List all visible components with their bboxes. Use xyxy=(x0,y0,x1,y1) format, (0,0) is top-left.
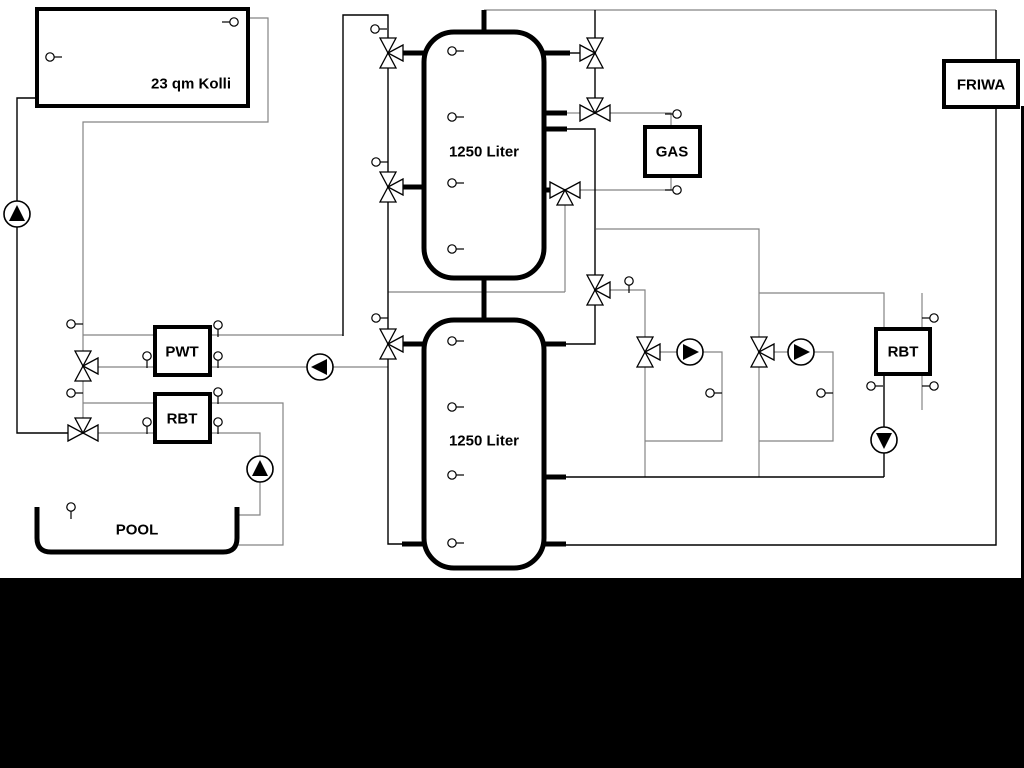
solar-collector-label: 23 qm Kolli xyxy=(151,76,231,93)
pwt-heat-exchanger-label: PWT xyxy=(165,344,198,361)
three-way-valve xyxy=(380,38,403,68)
temperature-sensor-icon xyxy=(448,113,456,121)
rbt-right-label: RBT xyxy=(888,344,919,361)
temperature-sensor-icon xyxy=(230,18,238,26)
friwa-station-label: FRIWA xyxy=(957,77,1005,94)
temperature-sensor-icon xyxy=(930,382,938,390)
three-way-valve xyxy=(751,337,774,367)
gas-boiler-label: GAS xyxy=(656,144,689,161)
temperature-sensor-icon xyxy=(673,186,681,194)
temperature-sensor-icon xyxy=(143,352,151,360)
temperature-sensor-icon xyxy=(448,337,456,345)
pool-label: POOL xyxy=(116,522,159,539)
three-way-valve xyxy=(580,38,603,68)
temperature-sensor-icon xyxy=(448,47,456,55)
temperature-sensor-icon xyxy=(214,418,222,426)
temperature-sensor-icon xyxy=(448,403,456,411)
temperature-sensor-icon xyxy=(67,389,75,397)
pipe-line xyxy=(610,290,645,337)
temperature-sensor-icon xyxy=(448,245,456,253)
three-way-valve xyxy=(380,329,403,359)
buffer-tank-1-label: 1250 Liter xyxy=(449,144,519,161)
temperature-sensor-icon xyxy=(143,418,151,426)
pipe-line xyxy=(237,482,260,515)
pipe-line xyxy=(388,359,402,544)
temperature-sensor-icon xyxy=(67,503,75,511)
temperature-sensor-icon xyxy=(625,277,633,285)
three-way-valve xyxy=(75,351,98,381)
bottom-letterbox xyxy=(0,578,1024,768)
temperature-sensor-icon xyxy=(372,314,380,322)
temperature-sensor-icon xyxy=(930,314,938,322)
three-way-valve xyxy=(587,275,610,305)
temperature-sensor-icon xyxy=(214,321,222,329)
pipe-line xyxy=(565,107,996,545)
temperature-sensor-icon xyxy=(867,382,875,390)
temperature-sensor-icon xyxy=(448,539,456,547)
pipe-line xyxy=(580,176,671,190)
temperature-sensor-icon xyxy=(817,389,825,397)
pipe-line xyxy=(610,113,671,127)
three-way-valve xyxy=(580,98,610,121)
schematic-canvas: 23 qm KolliGASFRIWAPWTRBTRBT1250 Liter12… xyxy=(0,0,1024,768)
pipe-line xyxy=(17,98,68,433)
temperature-sensor-icon xyxy=(214,352,222,360)
three-way-valve xyxy=(637,337,660,367)
temperature-sensor-icon xyxy=(372,158,380,166)
temperature-sensor-icon xyxy=(448,471,456,479)
temperature-sensor-icon xyxy=(67,320,75,328)
hydraulic-schematic: 23 qm KolliGASFRIWAPWTRBTRBT1250 Liter12… xyxy=(0,0,1024,768)
temperature-sensor-icon xyxy=(448,179,456,187)
pipe-line xyxy=(759,293,884,329)
temperature-sensor-icon xyxy=(46,53,54,61)
temperature-sensor-icon xyxy=(371,25,379,33)
rbt-left-label: RBT xyxy=(167,411,198,428)
three-way-valve xyxy=(550,182,580,205)
three-way-valve xyxy=(380,172,403,202)
pipe-line xyxy=(210,433,260,456)
three-way-valve xyxy=(68,418,98,441)
temperature-sensor-icon xyxy=(214,388,222,396)
buffer-tank-2-label: 1250 Liter xyxy=(449,433,519,450)
pipe-line xyxy=(596,229,759,337)
temperature-sensor-icon xyxy=(706,389,714,397)
pipe-line xyxy=(566,305,595,344)
temperature-sensor-icon xyxy=(673,110,681,118)
